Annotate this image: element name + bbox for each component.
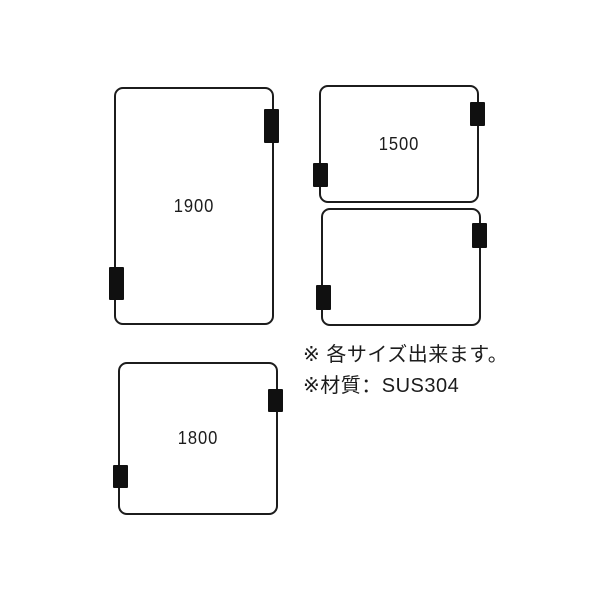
panel-1500: 1500 [319,85,479,203]
annotation-notes: ※ 各サイズ出来ます。 ※材質：SUS304 [303,340,508,402]
hinge-icon [264,109,279,143]
note-sizes-available: ※ 各サイズ出来ます。 [303,340,508,371]
panel-1900-size-label: 1900 [174,196,215,217]
hinge-icon [109,267,124,300]
hinge-icon [470,102,485,126]
diagram-canvas: 1900 1500 1800 ※ 各サイズ出来ます。 ※材質：SUS304 [0,0,600,600]
panel-1500-size-label: 1500 [379,134,420,155]
panel-1800-size-label: 1800 [178,428,219,449]
note-material-sus304: ※材質：SUS304 [303,371,508,402]
hinge-icon [268,389,283,412]
hinge-icon [313,163,328,187]
hinge-icon [472,223,487,248]
hinge-icon [113,465,128,488]
panel-1900: 1900 [114,87,274,325]
panel-1800: 1800 [118,362,278,515]
hinge-icon [316,285,331,310]
panel-unlabeled [321,208,481,326]
